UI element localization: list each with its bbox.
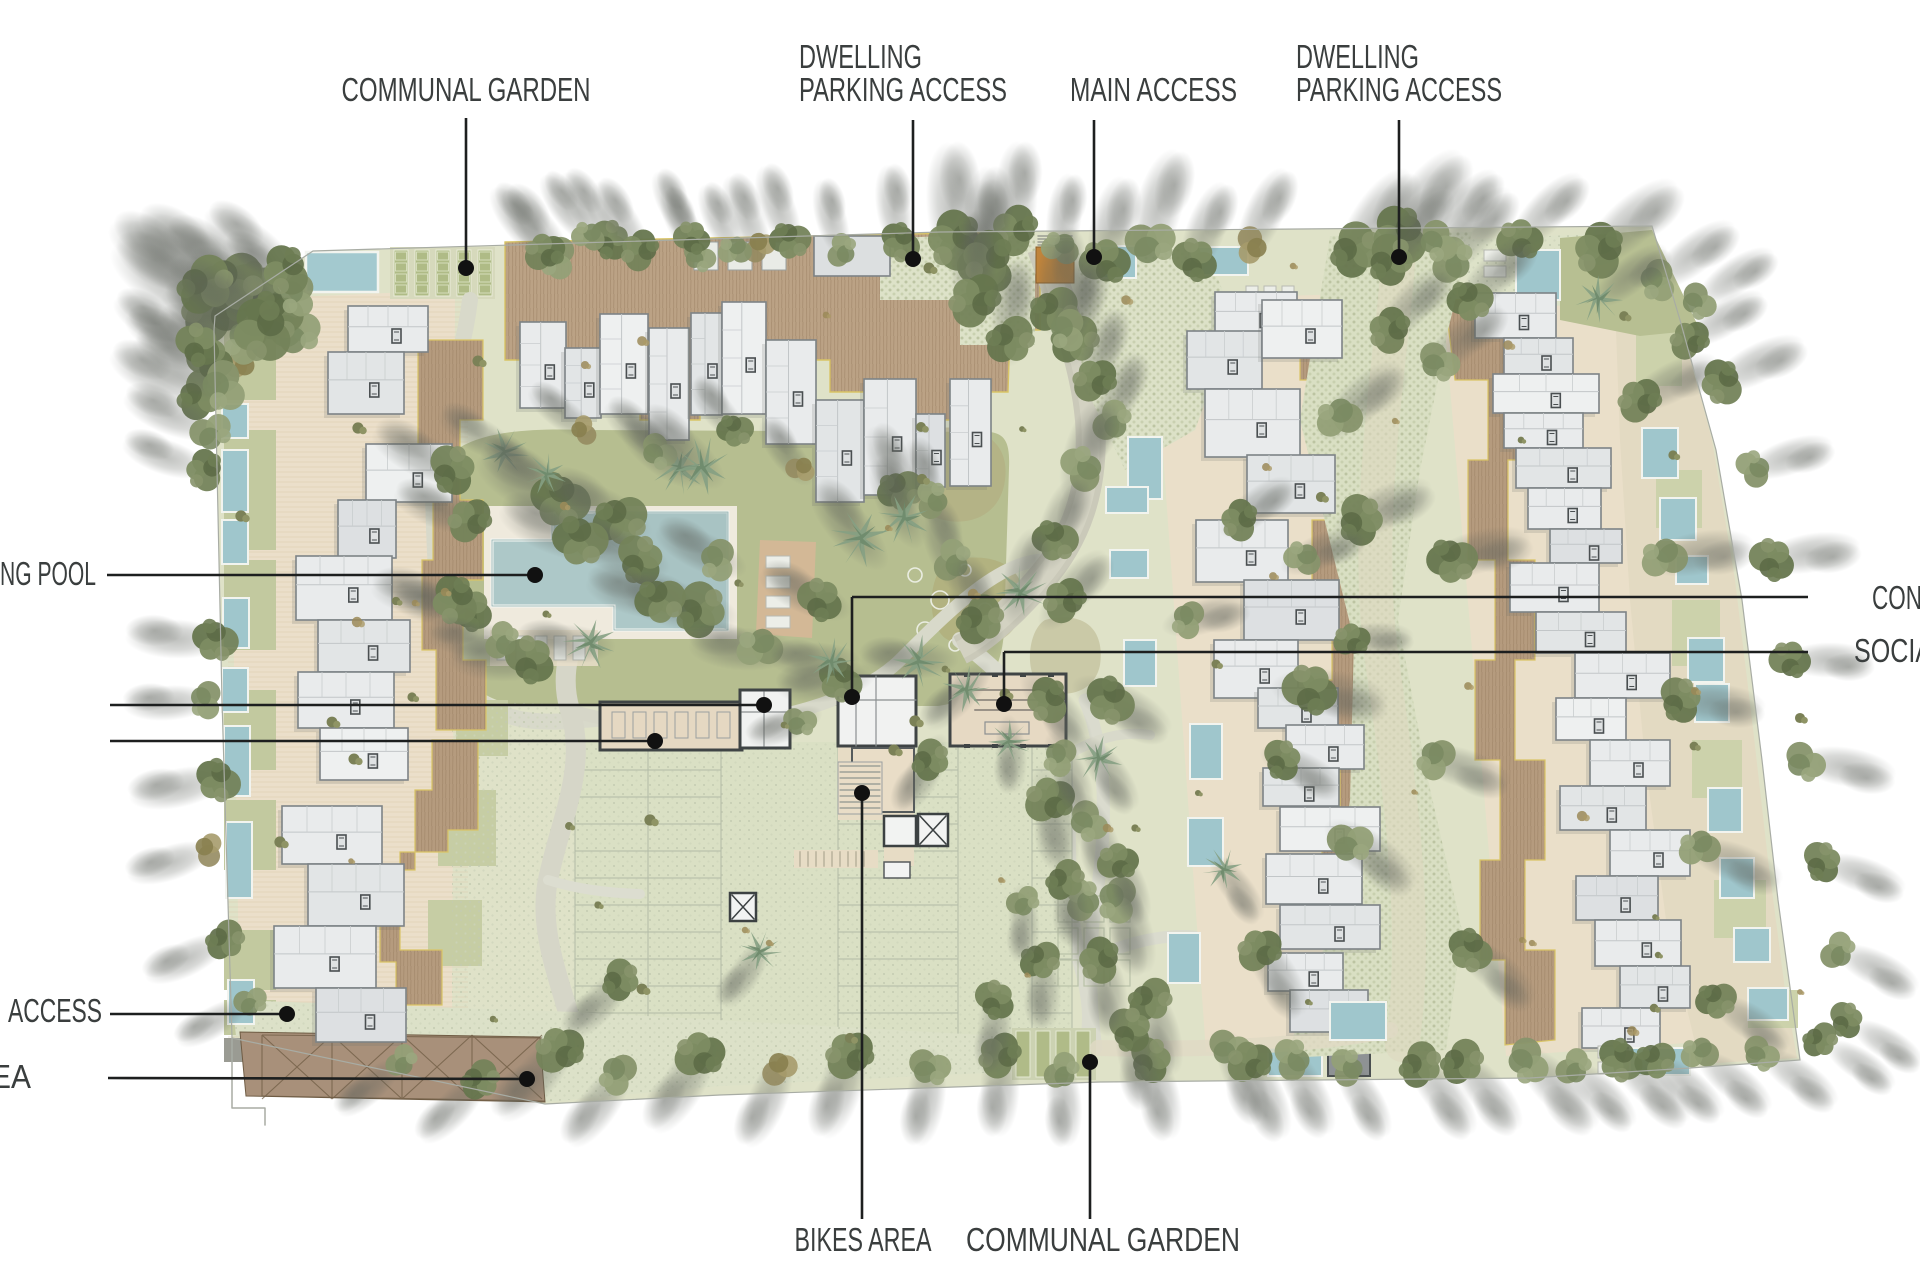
svg-text:MAIN ACCESS: MAIN ACCESS <box>1070 71 1237 108</box>
svg-text:SOCIAL: SOCIAL <box>1854 632 1920 669</box>
svg-text:COMMUNAL GARDEN: COMMUNAL GARDEN <box>342 71 591 108</box>
svg-text:COMMUNAL GARDEN: COMMUNAL GARDEN <box>966 1221 1240 1258</box>
svg-text:EA: EA <box>0 1058 31 1095</box>
svg-text:DWELLING: DWELLING <box>799 38 922 75</box>
svg-text:PARKING ACCESS: PARKING ACCESS <box>1296 71 1502 108</box>
svg-text:ACCESS: ACCESS <box>8 992 102 1029</box>
svg-text:NG POOL: NG POOL <box>0 555 96 592</box>
svg-text:PARKING ACCESS: PARKING ACCESS <box>799 71 1007 108</box>
svg-text:DWELLING: DWELLING <box>1296 38 1419 75</box>
svg-text:BIKES AREA: BIKES AREA <box>795 1221 932 1258</box>
svg-text:CON: CON <box>1872 579 1920 616</box>
